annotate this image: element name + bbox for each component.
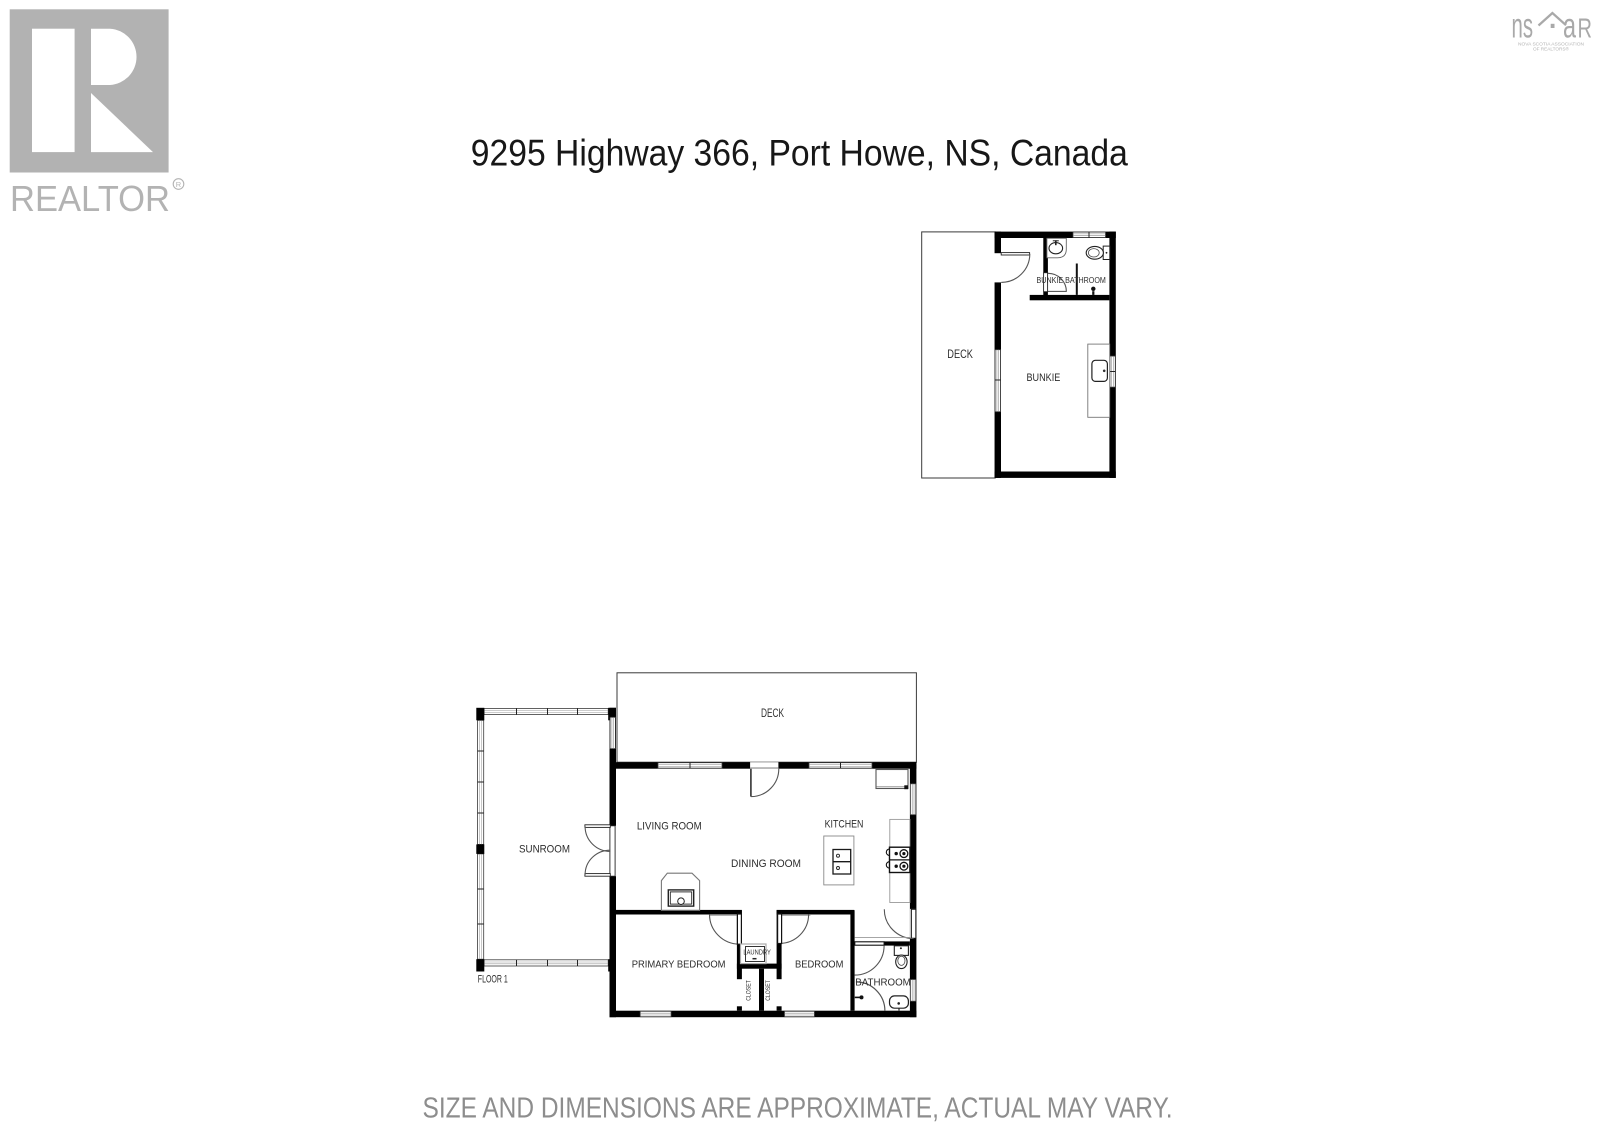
- svg-text:LAUNDRY: LAUNDRY: [743, 947, 770, 956]
- svg-text:a: a: [1563, 7, 1576, 46]
- svg-text:R: R: [1578, 13, 1593, 44]
- svg-text:KITCHEN: KITCHEN: [825, 818, 864, 830]
- svg-text:FLOOR 1: FLOOR 1: [478, 973, 508, 985]
- svg-text:CLOSET: CLOSET: [765, 980, 772, 1001]
- svg-text:OF REALTORS®: OF REALTORS®: [1533, 46, 1570, 52]
- svg-text:BUNKIE: BUNKIE: [1027, 372, 1061, 384]
- svg-text:LIVING ROOM: LIVING ROOM: [637, 821, 702, 833]
- svg-text:CLOSET: CLOSET: [745, 980, 752, 1001]
- svg-text:SIZE AND DIMENSIONS ARE APPROX: SIZE AND DIMENSIONS ARE APPROXIMATE, ACT…: [423, 1093, 1173, 1125]
- svg-text:DINING ROOM: DINING ROOM: [731, 858, 801, 870]
- svg-text:DECK: DECK: [947, 347, 973, 361]
- svg-text:DECK: DECK: [761, 706, 784, 720]
- svg-text:BEDROOM: BEDROOM: [795, 960, 843, 971]
- svg-text:SUNROOM: SUNROOM: [519, 844, 570, 856]
- svg-text:R: R: [176, 180, 182, 189]
- svg-text:REALTOR: REALTOR: [10, 178, 170, 219]
- svg-text:PRIMARY BEDROOM: PRIMARY BEDROOM: [632, 960, 726, 971]
- svg-text:BATHROOM: BATHROOM: [855, 977, 911, 988]
- svg-text:9295 Highway 366, Port Howe, N: 9295 Highway 366, Port Howe, NS, Canada: [471, 133, 1128, 174]
- svg-text:ns: ns: [1512, 7, 1534, 46]
- svg-text:BUNKIE BATHROOM: BUNKIE BATHROOM: [1037, 276, 1107, 285]
